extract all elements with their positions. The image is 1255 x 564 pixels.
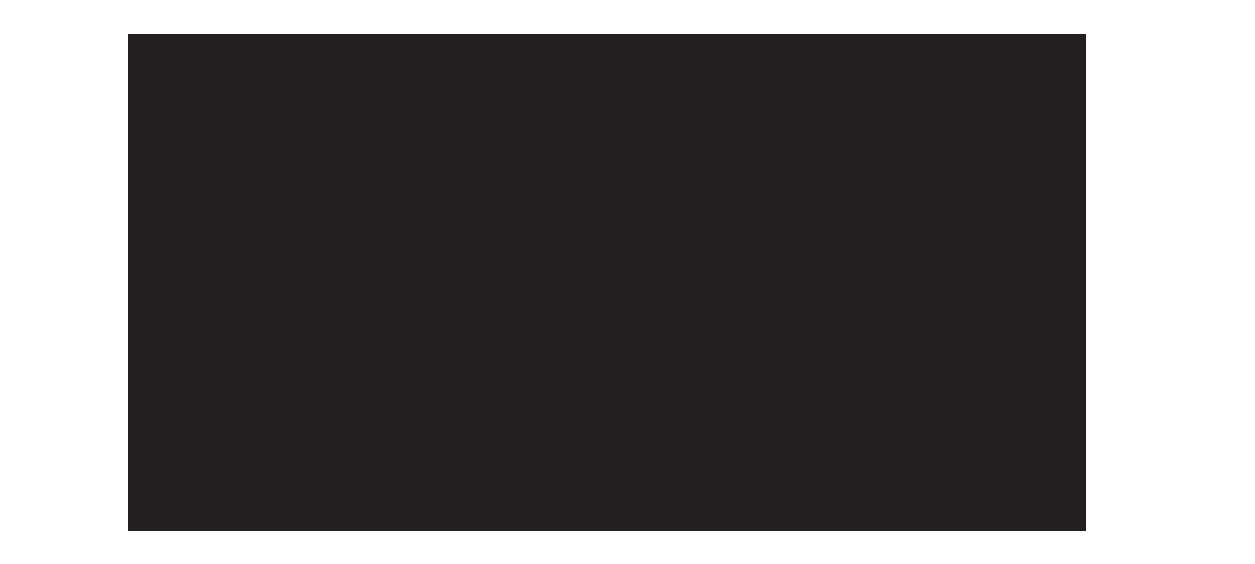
page-canvas: [0, 0, 1255, 564]
blank-screen: [128, 34, 1086, 531]
